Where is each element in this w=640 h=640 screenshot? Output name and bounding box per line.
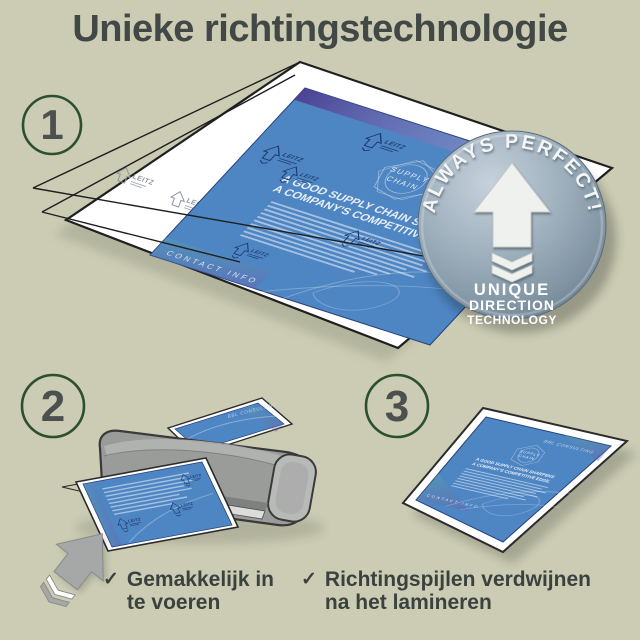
check-icon: ✓ [301, 568, 317, 592]
checklist-item-text: Gemakkelijk in te voeren [127, 568, 274, 614]
step3-scene: BBL CONSULTING SUPPLY CHAIN A GOOD SUPPL… [403, 408, 637, 564]
checklist-line: Richtingspijlen verdwijnen [325, 568, 591, 591]
checklist-line: na het lamineren [325, 591, 492, 614]
checklist-line: te voeren [127, 591, 220, 614]
check-icon: ✓ [103, 568, 119, 592]
checklist-line: Gemakkelijk in [127, 568, 274, 591]
step3-marker: 3 [366, 375, 428, 437]
badge-line2: DIRECTION [469, 297, 555, 313]
step1-marker: 1 [23, 96, 81, 154]
badge-line3: TECHNOLOGY [467, 313, 557, 327]
infographic: Unieke richtingstechnologie [0, 0, 640, 640]
checklist-item-text: Richtingspijlen verdwijnen na het lamine… [325, 568, 591, 614]
step1-number: 1 [40, 101, 63, 148]
step3-number: 3 [385, 382, 409, 431]
checklist-item-arrows-disappear: ✓ Richtingspijlen verdwijnen na het lami… [301, 568, 591, 614]
step2-marker: 2 [22, 375, 84, 437]
checklist-item-easy-feed: ✓ Gemakkelijk in te voeren [103, 568, 274, 614]
step2-number: 2 [41, 382, 65, 431]
illustration-canvas: LEITZ LEITZ [0, 0, 640, 640]
